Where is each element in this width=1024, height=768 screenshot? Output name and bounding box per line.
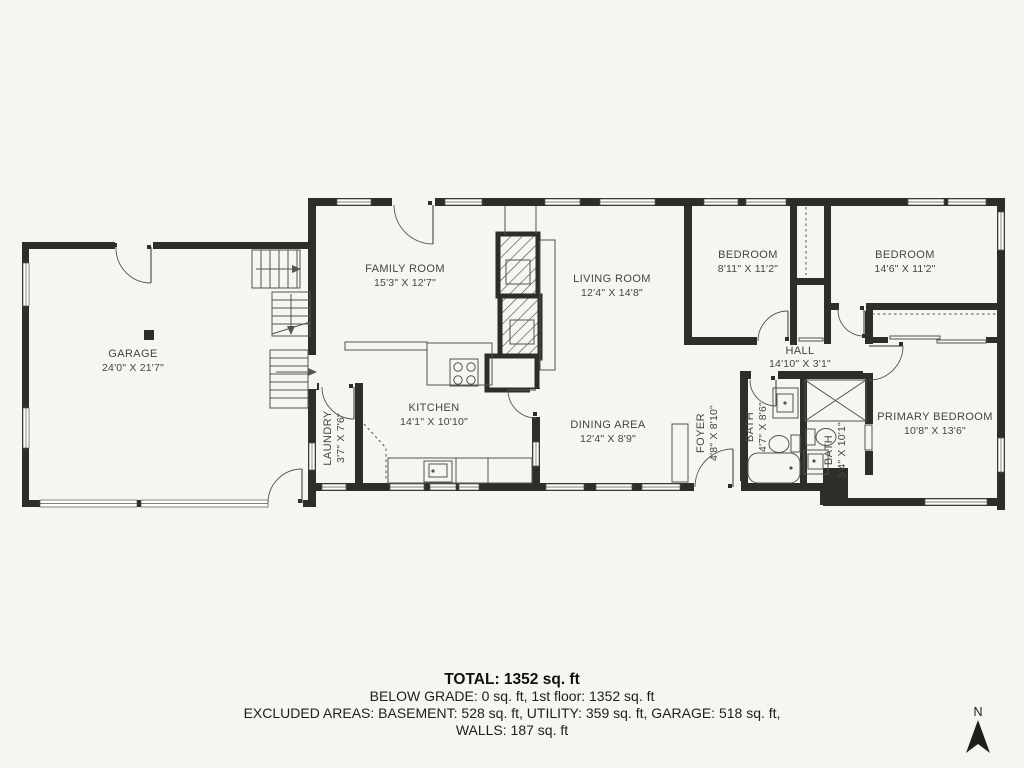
- summary-excluded-areas: EXCLUDED AREAS: BASEMENT: 528 sq. ft, UT…: [244, 705, 781, 721]
- room-dims-family-room: 15'3" X 12'7": [374, 277, 436, 289]
- summary-below-grade: BELOW GRADE: 0 sq. ft, 1st floor: 1352 s…: [370, 688, 655, 704]
- room-dims-laundry: 3'7" X 7'6": [335, 413, 347, 463]
- room-dims-bath-1: 4'7" X 8'6": [757, 402, 769, 452]
- summary-walls: WALLS: 187 sq. ft: [456, 722, 568, 738]
- room-dims-foyer: 4'8" X 8'10": [708, 405, 720, 461]
- room-dims-hall: 14'10" X 3'1": [769, 358, 831, 370]
- room-dims-bedroom-1: 8'11" X 11'2": [718, 263, 778, 275]
- north-arrow: N: [966, 705, 990, 753]
- room-label-primary-bedroom: PRIMARY BEDROOM: [877, 411, 993, 423]
- summary-total: TOTAL: 1352 sq. ft: [444, 671, 580, 688]
- room-dims-dining-area: 12'4" X 8'9": [580, 433, 636, 445]
- north-label: N: [973, 705, 982, 719]
- floor-plan-canvas: GARAGE 24'0" X 21'7" FAMILY ROOM 15'3" X…: [0, 0, 1024, 768]
- room-dims-bedroom-2: 14'6" X 11'2": [874, 263, 935, 275]
- floor-plan-page: GARAGE 24'0" X 21'7" FAMILY ROOM 15'3" X…: [0, 0, 1024, 768]
- room-label-dining-area: DINING AREA: [570, 419, 646, 431]
- room-label-bath-1: BATH: [744, 412, 756, 442]
- room-label-living-room: LIVING ROOM: [573, 273, 651, 285]
- room-label-bedroom-2: BEDROOM: [875, 249, 935, 261]
- room-label-bedroom-1: BEDROOM: [718, 249, 778, 261]
- room-label-foyer: FOYER: [695, 413, 707, 453]
- room-labels-layer: GARAGE 24'0" X 21'7" FAMILY ROOM 15'3" X…: [102, 249, 993, 478]
- room-dims-bath-2: 5'4" X 10'1": [836, 422, 848, 478]
- room-label-family-room: FAMILY ROOM: [365, 263, 445, 275]
- room-label-garage: GARAGE: [108, 348, 157, 360]
- room-dims-primary-bedroom: 10'8" X 13'6": [904, 425, 966, 437]
- room-dims-living-room: 12'4" X 14'8": [581, 287, 643, 299]
- chimney-layer: [144, 234, 540, 390]
- north-arrow-icon: [966, 720, 990, 753]
- room-label-bath-2: BATH: [823, 435, 835, 465]
- room-dims-kitchen: 14'1" X 10'10": [400, 416, 468, 428]
- room-label-hall: HALL: [785, 345, 814, 357]
- room-label-laundry: LAUNDRY: [322, 410, 334, 465]
- area-summary: TOTAL: 1352 sq. ft BELOW GRADE: 0 sq. ft…: [244, 671, 781, 738]
- room-dims-garage: 24'0" X 21'7": [102, 362, 164, 374]
- room-label-kitchen: KITCHEN: [408, 402, 459, 414]
